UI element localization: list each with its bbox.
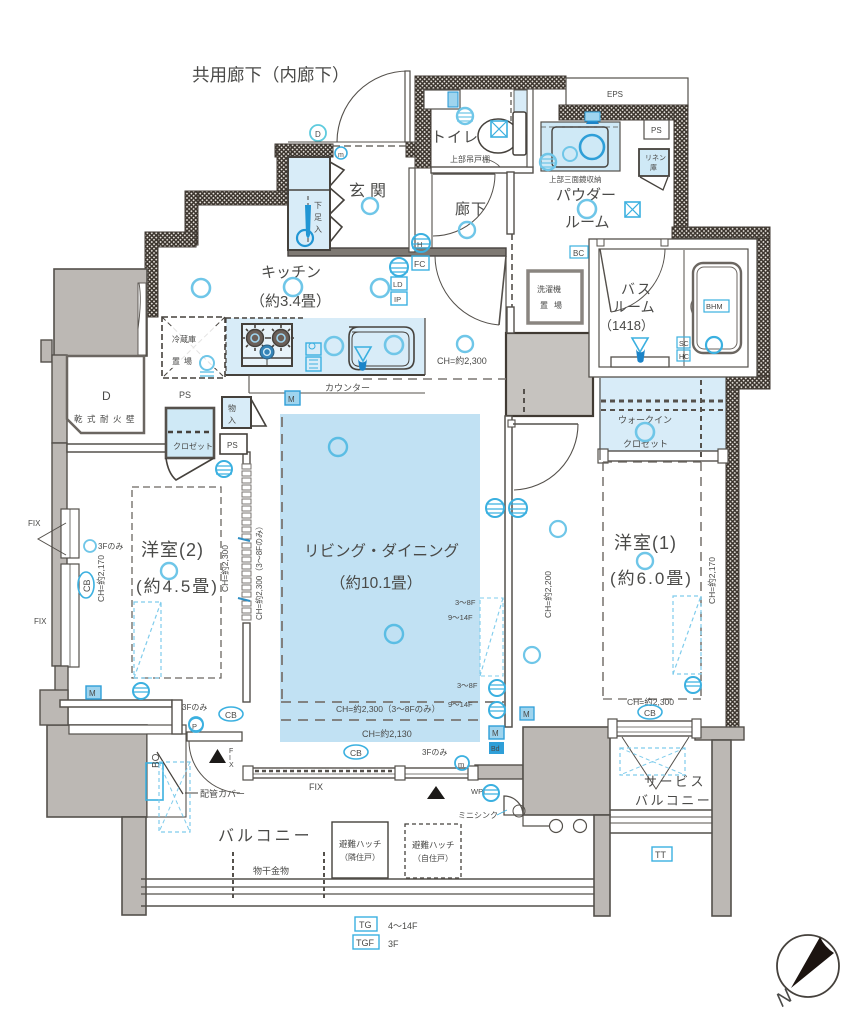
svg-text:洗濯機: 洗濯機 (537, 284, 561, 294)
svg-text:CB: CB (644, 708, 656, 718)
svg-text:廊下: 廊下 (455, 201, 487, 218)
svg-text:避難ハッチ: 避難ハッチ (339, 839, 382, 849)
svg-text:m: m (458, 760, 464, 769)
svg-text:バルコニー: バルコニー (218, 828, 313, 845)
svg-text:PS: PS (651, 126, 662, 135)
svg-text:4〜14F: 4〜14F (388, 921, 418, 931)
svg-text:洋室(1): 洋室(1) (614, 533, 677, 553)
svg-text:ルーム: ルーム (565, 214, 610, 231)
svg-text:3Fのみ: 3Fのみ (98, 542, 123, 551)
svg-text:HC: HC (679, 354, 689, 361)
svg-text:CH=約2,170: CH=約2,170 (707, 557, 717, 604)
svg-text:クロゼット: クロゼット (623, 438, 668, 449)
svg-text:BC: BC (573, 249, 584, 258)
svg-text:TG: TG (359, 920, 372, 930)
svg-text:FC: FC (414, 259, 425, 269)
svg-text:3Fのみ: 3Fのみ (422, 748, 447, 757)
svg-text:トイレ: トイレ (431, 129, 479, 146)
svg-text:入: 入 (314, 225, 322, 234)
svg-text:SC: SC (679, 341, 689, 348)
svg-text:N: N (772, 985, 797, 1012)
svg-text:カウンター: カウンター (325, 383, 370, 393)
svg-text:PS: PS (179, 390, 191, 400)
svg-text:CB: CB (82, 579, 92, 592)
svg-text:ルーム: ルーム (613, 299, 655, 315)
svg-text:洋室(2): 洋室(2) (141, 540, 204, 560)
svg-text:置場: 置場 (540, 300, 568, 310)
svg-text:（1418）: （1418） (599, 318, 654, 333)
svg-text:冷蔵庫: 冷蔵庫 (172, 334, 196, 344)
svg-text:バルコニー: バルコニー (635, 793, 712, 808)
svg-text:PS: PS (227, 441, 238, 450)
svg-text:足: 足 (314, 213, 322, 222)
svg-text:BHM: BHM (706, 302, 723, 311)
svg-text:M: M (89, 689, 96, 698)
svg-text:EPS: EPS (607, 90, 623, 99)
svg-text:リネン: リネン (645, 154, 666, 162)
svg-text:配管カバー: 配管カバー (200, 788, 245, 799)
svg-text:m: m (338, 152, 344, 159)
svg-text:3F: 3F (388, 939, 399, 949)
svg-text:(約6.0畳): (約6.0畳) (610, 569, 693, 588)
svg-text:IP: IP (394, 295, 401, 304)
svg-text:（隣住戸）: （隣住戸） (340, 852, 380, 862)
svg-text:バス: バス (621, 281, 653, 297)
svg-text:TGF: TGF (356, 938, 374, 948)
svg-text:下: 下 (314, 201, 322, 210)
svg-text:BO: BO (151, 753, 162, 768)
svg-text:FIX: FIX (34, 617, 47, 626)
svg-text:M: M (288, 395, 295, 404)
svg-text:FIX: FIX (309, 782, 323, 792)
svg-text:I: I (229, 755, 231, 762)
svg-text:CB: CB (225, 710, 237, 720)
svg-text:CB: CB (350, 748, 362, 758)
svg-text:CH=約2,300: CH=約2,300 (220, 545, 230, 592)
svg-text:CH=約2,130: CH=約2,130 (362, 728, 412, 739)
svg-text:TT: TT (655, 850, 666, 860)
svg-text:（約10.1畳）: （約10.1畳） (330, 574, 422, 592)
svg-text:CH=約2,200: CH=約2,200 (543, 571, 553, 618)
svg-text:D: D (315, 130, 321, 139)
svg-text:避難ハッチ: 避難ハッチ (412, 840, 455, 850)
svg-text:入: 入 (228, 416, 236, 425)
svg-text:D: D (102, 389, 111, 403)
svg-text:CH=約2,300（3〜8Fのみ）: CH=約2,300（3〜8Fのみ） (336, 704, 440, 714)
svg-text:共用廊下（内廊下）: 共用廊下（内廊下） (192, 65, 350, 85)
svg-text:上部三面鏡収納: 上部三面鏡収納 (549, 174, 602, 184)
svg-text:CH=約2,300（3〜8Fのみ）: CH=約2,300（3〜8Fのみ） (254, 522, 264, 620)
svg-text:CH=約2,300: CH=約2,300 (437, 355, 487, 366)
svg-text:物: 物 (228, 403, 236, 413)
svg-text:FIX: FIX (28, 519, 41, 528)
svg-text:ミニシンク: ミニシンク (458, 811, 498, 820)
svg-text:CH=約2,170: CH=約2,170 (96, 555, 106, 602)
svg-text:Bd: Bd (491, 746, 500, 753)
svg-text:クロゼット: クロゼット (173, 441, 213, 451)
svg-text:(約4.5畳): (約4.5畳) (136, 577, 219, 596)
svg-text:（自住戸）: （自住戸） (413, 853, 453, 863)
svg-text:置場: 置場 (172, 356, 196, 366)
svg-text:9〜14F: 9〜14F (448, 613, 473, 622)
svg-text:乾式耐火壁: 乾式耐火壁 (74, 414, 139, 424)
svg-text:3Fのみ: 3Fのみ (182, 703, 207, 712)
svg-text:パウダー: パウダー (556, 187, 616, 204)
svg-text:LD: LD (393, 280, 403, 289)
svg-text:リビング・ダイニング: リビング・ダイニング (304, 542, 459, 560)
svg-text:サービス: サービス (644, 774, 706, 789)
svg-text:9〜14F: 9〜14F (448, 700, 473, 709)
svg-text:3〜8F: 3〜8F (455, 598, 476, 607)
svg-text:物干金物: 物干金物 (253, 865, 289, 876)
svg-text:M: M (523, 710, 530, 719)
svg-text:X: X (229, 762, 234, 769)
svg-text:F: F (229, 748, 233, 755)
svg-text:3〜8F: 3〜8F (457, 681, 478, 690)
svg-text:上部吊戸棚: 上部吊戸棚 (450, 154, 490, 164)
svg-text:M: M (492, 729, 499, 738)
svg-text:庫: 庫 (650, 163, 657, 172)
svg-text:H: H (417, 240, 422, 249)
